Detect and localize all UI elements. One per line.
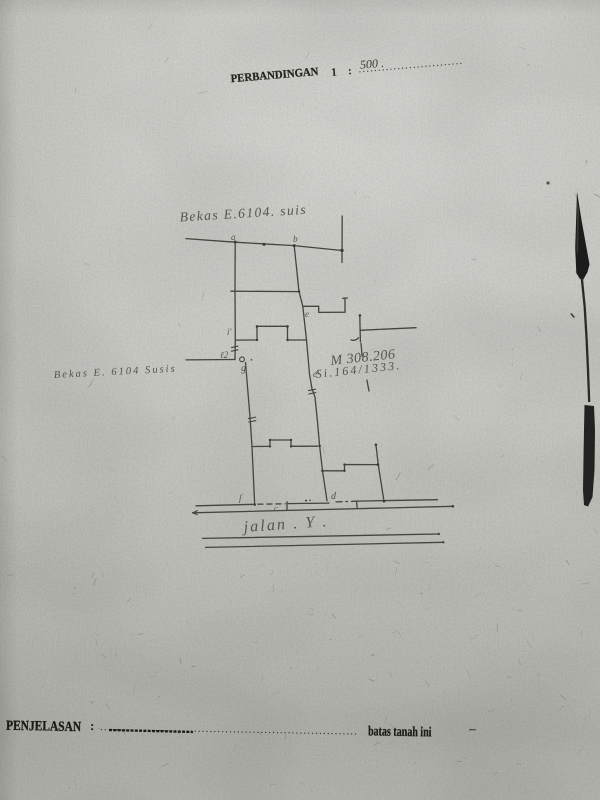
svg-text:ℓ2: ℓ2 bbox=[220, 350, 229, 360]
svg-text:b: b bbox=[293, 234, 298, 244]
svg-text:e: e bbox=[305, 309, 309, 319]
svg-text:g: g bbox=[241, 363, 246, 374]
svg-text:a: a bbox=[231, 232, 236, 242]
svg-text:batas tanah ini: batas tanah ini bbox=[368, 724, 432, 740]
svg-text:PENJELASAN: PENJELASAN bbox=[6, 719, 81, 735]
svg-text::: : bbox=[90, 718, 95, 733]
svg-text:c: c bbox=[274, 504, 278, 513]
